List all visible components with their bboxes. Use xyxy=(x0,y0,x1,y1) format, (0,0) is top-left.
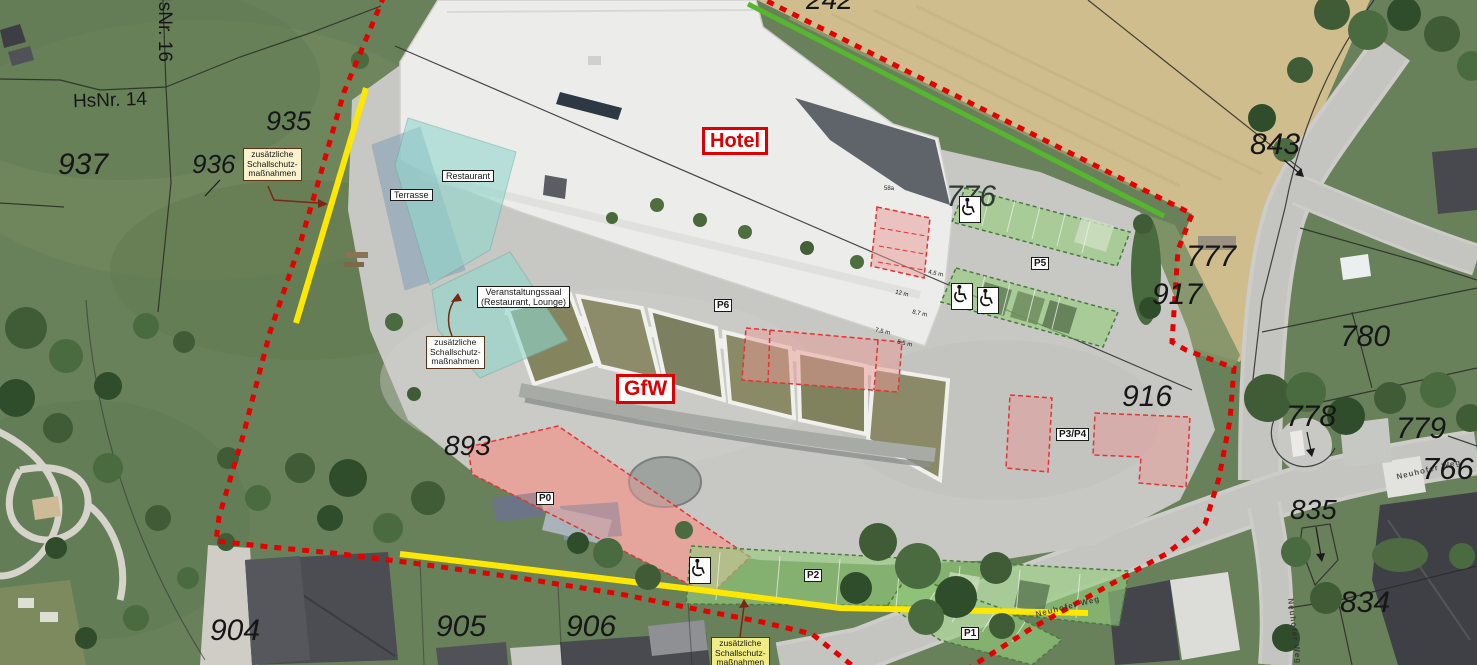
parking-label-p3p4: P3/P4 xyxy=(1056,428,1089,441)
noise-note-top: zusätzliche Schallschutz- maßnahmen xyxy=(243,148,302,181)
p3p4-left-overlay xyxy=(1006,395,1052,472)
restaurant-label: Restaurant xyxy=(442,170,494,182)
wheelchair-icon xyxy=(951,283,973,310)
house-number-16: HsNr. 16 xyxy=(154,0,175,62)
parcel-number-779: 779 xyxy=(1396,412,1446,446)
parking-label-p1: P1 xyxy=(961,627,979,640)
roof-number: 58a xyxy=(884,186,894,193)
hotel-rear-overlay xyxy=(871,207,930,278)
noise-note-middle: zusätzliche Schallschutz- maßnahmen xyxy=(426,336,485,369)
parcel-number-917: 917 xyxy=(1152,278,1202,312)
parcel-number-935: 935 xyxy=(266,106,311,136)
house-number-14: HsNr. 14 xyxy=(73,89,148,113)
playground xyxy=(32,496,61,520)
parcel-number-937: 937 xyxy=(58,148,108,182)
parcel-number-916: 916 xyxy=(1122,380,1172,414)
parcel-number-835: 835 xyxy=(1290,494,1337,525)
parcel-number-843: 843 xyxy=(1250,128,1300,162)
parcel-number-834: 834 xyxy=(1340,586,1390,620)
hotel-label: Hotel xyxy=(702,127,768,155)
aerial-base-layer xyxy=(0,0,1477,665)
parcel-number-904: 904 xyxy=(210,614,260,648)
terrasse-label: Terrasse xyxy=(390,189,433,201)
gfw-label: GfW xyxy=(616,374,675,404)
site-plan-map[interactable]: 937 936 935 242 843 776 777 917 916 780 … xyxy=(0,0,1477,665)
parking-label-p2: P2 xyxy=(804,569,822,582)
parcel-number-936: 936 xyxy=(192,150,235,179)
veranstaltungssaal-label: Veranstaltungssaal (Restaurant, Lounge) xyxy=(477,286,570,308)
parcel-number-777: 777 xyxy=(1186,240,1236,274)
parking-label-p6: P6 xyxy=(714,299,732,312)
parking-label-p5: P5 xyxy=(1031,257,1049,270)
parcel-number-893: 893 xyxy=(444,430,491,461)
parcel-number-780: 780 xyxy=(1340,320,1390,354)
wheelchair-icon xyxy=(977,287,999,314)
parcel-number-905: 905 xyxy=(436,610,486,644)
parking-label-p0: P0 xyxy=(536,492,554,505)
parcel-number-242: 242 xyxy=(806,0,853,15)
parcel-number-906: 906 xyxy=(566,610,616,644)
parcel-number-778: 778 xyxy=(1286,400,1336,434)
wheelchair-icon xyxy=(959,196,981,223)
wheelchair-icon xyxy=(689,557,711,584)
noise-note-bottom: zusätzliche Schallschutz- maßnahmen xyxy=(711,637,770,665)
